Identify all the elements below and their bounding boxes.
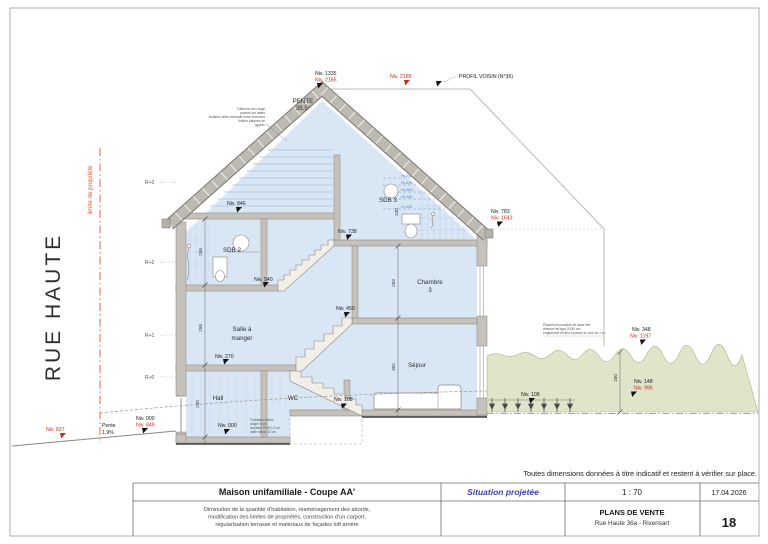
street-line — [12, 431, 176, 446]
annotation-talus: Placement possible de talus vert retenue… — [543, 323, 605, 336]
niv-996: Niv. 996 — [634, 386, 653, 392]
niv-108-terrace: Niv. 108 — [521, 392, 540, 398]
room-salle-line2: manger — [232, 335, 253, 342]
niv-108-sejour: Niv. 108 — [334, 397, 353, 403]
svg-text:engazonné en lieu et place du: engazonné en lieu et place du mur de 1 m — [543, 331, 605, 335]
section-drawing-svg: RUE HAUTE limite de propriété R+3 R+2 R+… — [0, 0, 768, 544]
drawing-sheet: RUE HAUTE limite de propriété R+3 R+2 R+… — [0, 0, 768, 544]
sdb3-toilet-bowl — [405, 224, 417, 238]
level-axis: R+3 R+2 R+1 R+0 — [145, 180, 176, 381]
slab-270 — [176, 365, 300, 371]
project-title: Maison unifamiliale - Coupe AA' — [219, 487, 355, 497]
slab-450 — [352, 318, 477, 324]
scale-value: 1 : 70 — [622, 488, 643, 497]
room-sdb3: SDB 3 — [379, 197, 397, 204]
left-wall-upper — [176, 222, 186, 396]
terrain-green-band — [487, 344, 758, 412]
headroom-190: H=190 — [401, 194, 413, 199]
slab-738 — [330, 240, 487, 246]
interior-fill — [186, 101, 477, 437]
room-chambre3-line1: Chambre — [417, 279, 443, 286]
marker-000-entrance — [142, 428, 148, 434]
dim-sdb3-height: 240 — [394, 208, 399, 216]
dim-salle-height: 258 — [198, 324, 203, 332]
sdb2-shower-head — [187, 244, 191, 248]
room-wc: WC — [288, 395, 299, 402]
niv-neighbor-ridge: Niv. 2185 — [390, 74, 412, 80]
foundation-dashed — [290, 416, 362, 444]
headroom-200: H=200 — [401, 187, 413, 192]
niv-846: Niv. 846 — [227, 201, 246, 207]
right-wall-base — [477, 398, 487, 415]
niv-148: Niv. 148 — [634, 379, 653, 385]
roof-pitch-label: PENTE — [293, 98, 314, 105]
slab-846 — [176, 213, 338, 219]
niv-783: Niv. 783 — [491, 209, 510, 215]
niv-1643: Niv. 1643 — [491, 216, 513, 222]
profil-voisin-label: PROFIL VOISIN (N°36) — [459, 74, 513, 80]
slab-000 — [176, 437, 290, 443]
dim-hall-height: 240 — [195, 400, 200, 408]
marker-profil-voisin — [436, 81, 442, 87]
level-r3: R+3 — [145, 180, 155, 186]
title-block: Maison unifamiliale - Coupe AA' Situatio… — [133, 483, 759, 536]
marker-827 — [60, 433, 66, 439]
description-line3: régularisation terrasse et matériaux de … — [215, 522, 358, 528]
address-label: Rue Haute 36a - Rixensart — [595, 520, 670, 527]
gutter-left — [162, 219, 170, 228]
street-slope-value: 1,9% — [102, 430, 114, 436]
svg-text:gyproc: gyproc — [255, 123, 265, 127]
level-r1: R+1 — [145, 333, 155, 339]
right-wall-mid — [477, 316, 487, 346]
sdb2-toilet-bowl — [216, 271, 225, 282]
page-number: 18 — [722, 515, 736, 530]
niv-ridge-red: Niv. 2185 — [315, 78, 337, 84]
niv-ridge-black: Niv. 1335 — [315, 71, 337, 77]
roof-pitch-value: 39,5° — [296, 105, 311, 112]
room-sdb2: SDB 2 — [223, 247, 241, 254]
gutter-right — [485, 229, 493, 238]
niv-000-hall: Niv. 000 — [218, 423, 237, 429]
description-line1: Diminution de la quantité d'habitation, … — [204, 507, 371, 513]
level-r0: R+0 — [145, 375, 155, 381]
room-hall: Hall — [213, 395, 224, 402]
headroom-220: H=220 — [401, 180, 413, 185]
sdb3-toilet-tank — [402, 214, 420, 224]
slab-108 — [290, 410, 487, 416]
wall-sdb2 — [261, 219, 267, 285]
niv-1197: Niv. 1197 — [630, 334, 651, 340]
plans-label: PLANS DE VENTE — [599, 508, 664, 517]
niv-738: Niv. 738 — [338, 229, 357, 235]
niv-849: Niv. 849 — [136, 423, 155, 429]
dim-terrain-depth: 200 — [613, 374, 618, 382]
dim-sdb2-height: 258 — [198, 248, 203, 256]
niv-450: Niv. 450 — [336, 306, 355, 312]
svg-text:dalle béton 22 cm: dalle béton 22 cm — [250, 430, 276, 434]
dimensions-note: Toutes dimensions données à titre indica… — [523, 469, 757, 478]
sdb3-washbasin — [384, 184, 398, 198]
property-limit-line: limite de propriété — [87, 148, 100, 443]
headroom-150: H=150 — [401, 204, 413, 209]
left-wall-base — [176, 432, 186, 443]
street-slope-label: Pente — [102, 423, 116, 429]
sdb3-shower-head — [432, 213, 435, 216]
niv-827: Niv. 827 — [46, 427, 65, 433]
level-r2: R+2 — [145, 260, 155, 266]
dim-sejour-height: 302 — [391, 363, 396, 371]
date-value: 17.04.2026 — [711, 490, 746, 497]
dim-chambre-height: 253 — [391, 279, 396, 287]
street-name-label: RUE HAUTE — [42, 233, 65, 381]
terrain — [487, 344, 758, 413]
niv-000-entrance: Niv. 000 — [136, 416, 155, 422]
room-chambre3-line2: 3 — [428, 287, 432, 294]
room-sejour: Séjour — [408, 362, 426, 369]
marker-neighbor-ridge — [404, 80, 410, 86]
wall-sdb3 — [334, 155, 340, 240]
niv-348: Niv. 348 — [632, 327, 651, 333]
property-limit-label: limite de propriété — [87, 165, 94, 215]
marker-783 — [497, 222, 503, 228]
room-salle-line1: Salle à — [233, 326, 252, 333]
marker-348 — [640, 340, 646, 346]
description-line2: modification des limites de propriétés, … — [208, 515, 366, 521]
situation-label: Situation projetée — [467, 487, 539, 497]
